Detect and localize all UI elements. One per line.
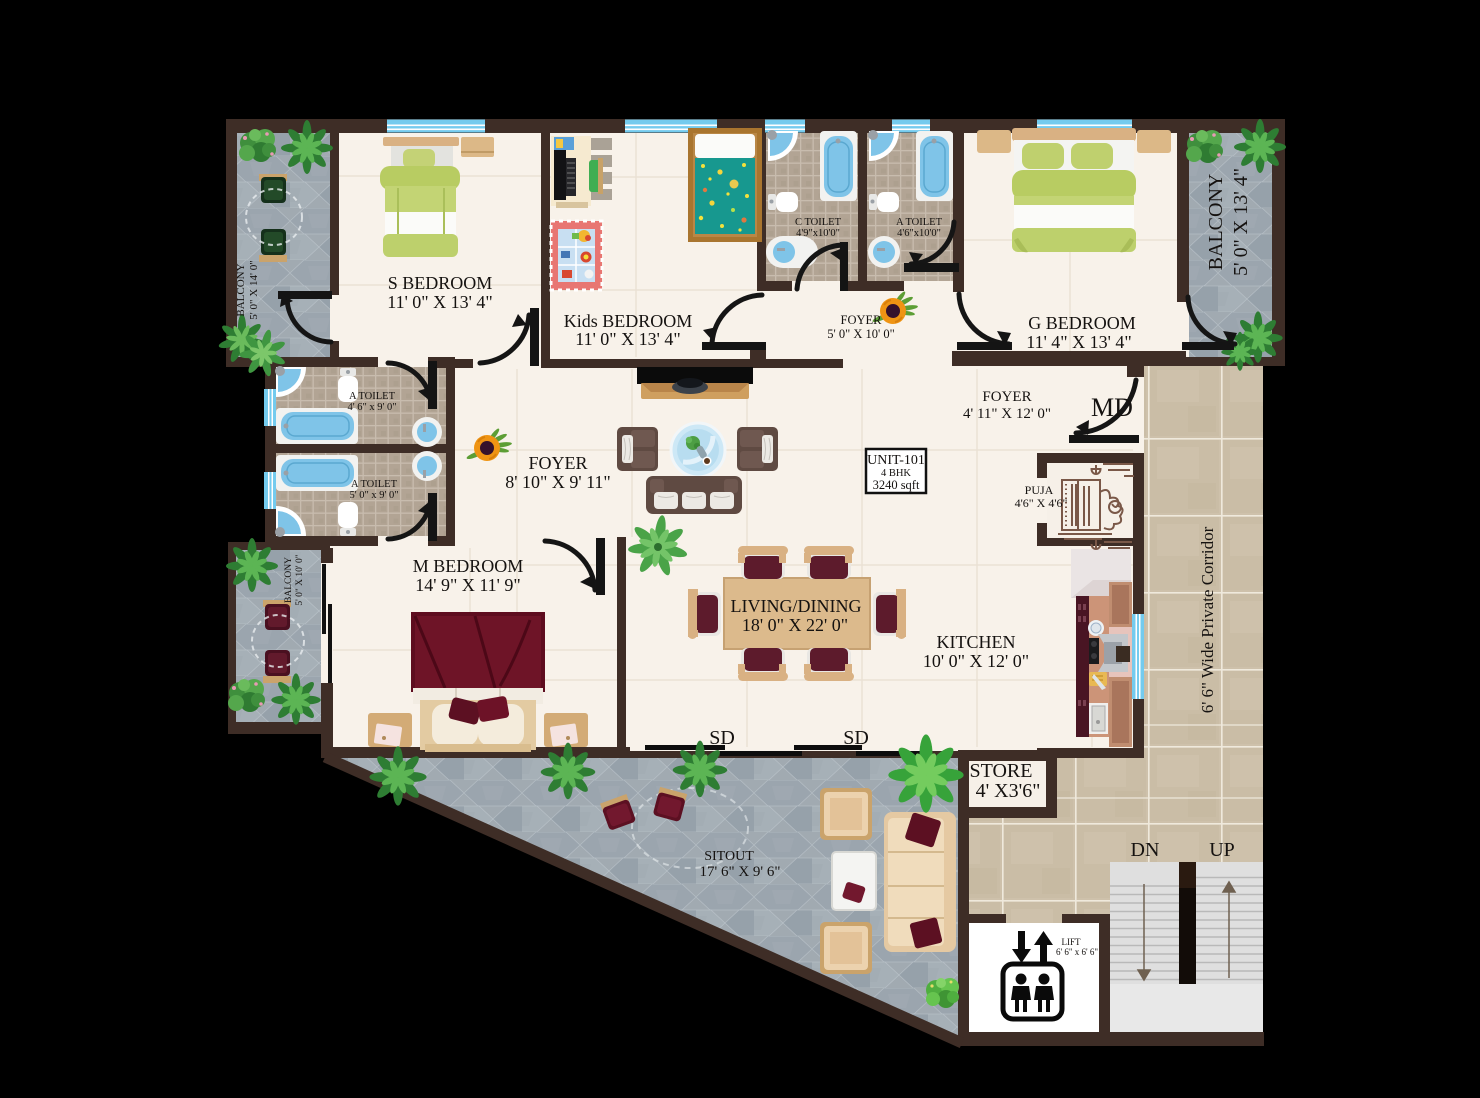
svg-text:4'6" X 4'6": 4'6" X 4'6" — [1015, 496, 1068, 510]
svg-text:UP: UP — [1209, 839, 1235, 861]
svg-text:4' 11" X 12' 0": 4' 11" X 12' 0" — [963, 406, 1051, 422]
svg-text:3240 sqft: 3240 sqft — [873, 478, 920, 492]
svg-text:LIFT: LIFT — [1062, 937, 1082, 947]
svg-text:SD: SD — [709, 727, 735, 749]
svg-text:5' 0" X 10' 0": 5' 0" X 10' 0" — [295, 554, 305, 605]
svg-text:5' 0" X 14' 0": 5' 0" X 14' 0" — [248, 260, 260, 319]
svg-text:LIVING/DINING: LIVING/DINING — [731, 596, 862, 616]
svg-text:KITCHEN: KITCHEN — [937, 632, 1016, 652]
svg-text:BALCONY: BALCONY — [284, 557, 294, 603]
svg-text:S BEDROOM: S BEDROOM — [388, 273, 493, 293]
svg-text:5' 0" X 13' 4": 5' 0" X 13' 4" — [1230, 168, 1252, 276]
svg-text:DN: DN — [1131, 839, 1160, 861]
svg-text:FOYER: FOYER — [982, 389, 1031, 405]
svg-text:BALCONY: BALCONY — [1205, 174, 1227, 271]
svg-text:11' 0" X 13' 4": 11' 0" X 13' 4" — [575, 329, 681, 349]
svg-text:UNIT-101: UNIT-101 — [867, 453, 925, 468]
svg-text:SD: SD — [843, 727, 869, 749]
svg-text:14' 9" X 11' 9": 14' 9" X 11' 9" — [415, 575, 521, 595]
svg-text:C TOILET: C TOILET — [795, 217, 842, 228]
svg-text:FOYER: FOYER — [528, 453, 587, 473]
svg-text:M BEDROOM: M BEDROOM — [413, 556, 524, 576]
svg-text:17' 6" X 9' 6": 17' 6" X 9' 6" — [700, 864, 781, 880]
svg-text:4' X3'6": 4' X3'6" — [976, 780, 1041, 802]
svg-text:4'6"x10'0": 4'6"x10'0" — [897, 228, 941, 239]
svg-text:MD: MD — [1091, 393, 1133, 422]
svg-text:FOYER: FOYER — [841, 313, 883, 327]
svg-text:A TOILET: A TOILET — [349, 391, 396, 402]
svg-text:A TOILET: A TOILET — [351, 479, 398, 490]
svg-text:SITOUT: SITOUT — [704, 849, 754, 864]
svg-text:G BEDROOM: G BEDROOM — [1028, 313, 1136, 333]
svg-text:18' 0" X 22' 0": 18' 0" X 22' 0" — [742, 615, 848, 635]
svg-text:A TOILET: A TOILET — [896, 217, 943, 228]
svg-text:5' 0" x 9' 0": 5' 0" x 9' 0" — [349, 490, 398, 501]
svg-text:8' 10" X 9' 11": 8' 10" X 9' 11" — [505, 472, 611, 492]
svg-text:6' 6" x 6' 6": 6' 6" x 6' 6" — [1056, 947, 1098, 957]
svg-text:11' 0" X 13' 4": 11' 0" X 13' 4" — [387, 292, 493, 312]
svg-text:4' 6" x 9' 0": 4' 6" x 9' 0" — [347, 402, 396, 413]
svg-text:5' 0" X 10' 0": 5' 0" X 10' 0" — [827, 327, 895, 341]
svg-text:11' 4" X 13' 4": 11' 4" X 13' 4" — [1026, 332, 1132, 352]
svg-text:PUJA: PUJA — [1025, 483, 1054, 497]
svg-text:4'9"x10'0": 4'9"x10'0" — [796, 228, 840, 239]
svg-text:10' 0" X 12' 0": 10' 0" X 12' 0" — [923, 651, 1029, 671]
svg-text:BALCONY: BALCONY — [235, 263, 247, 316]
svg-text:Kids BEDROOM: Kids BEDROOM — [564, 311, 693, 331]
svg-text:STORE: STORE — [970, 760, 1033, 782]
svg-text:6' 6" Wide Private Corridor: 6' 6" Wide Private Corridor — [1198, 526, 1217, 713]
